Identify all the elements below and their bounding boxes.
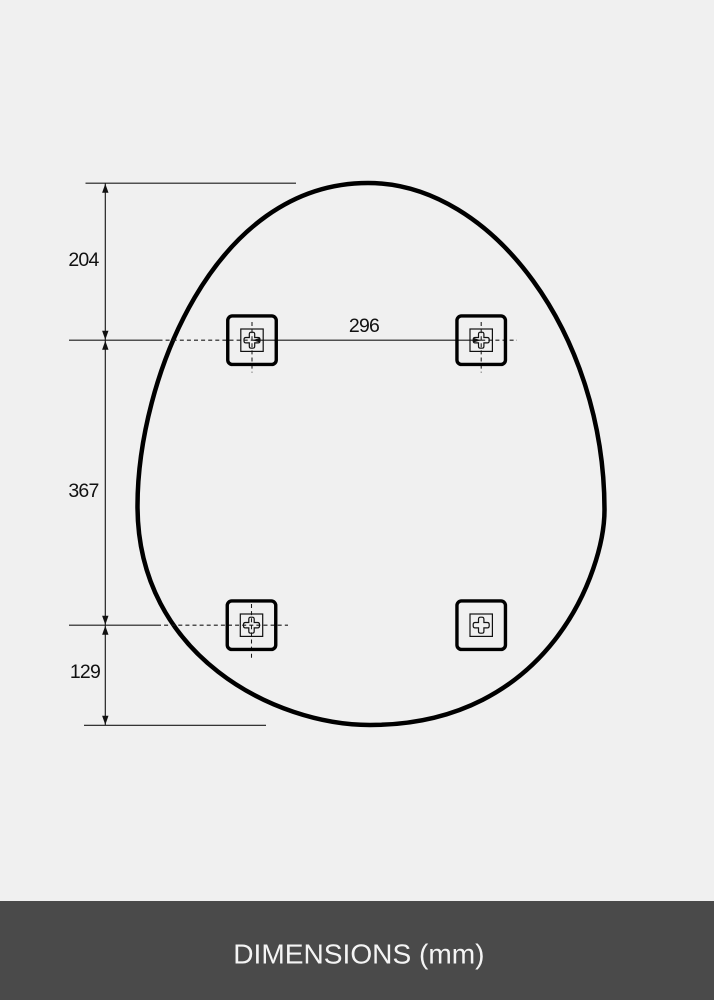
svg-text:204: 204 [68,249,99,271]
svg-text:296: 296 [349,315,379,337]
svg-text:129: 129 [70,661,100,683]
svg-text:DIMENSIONS (mm): DIMENSIONS (mm) [233,938,484,969]
svg-text:367: 367 [68,480,98,502]
